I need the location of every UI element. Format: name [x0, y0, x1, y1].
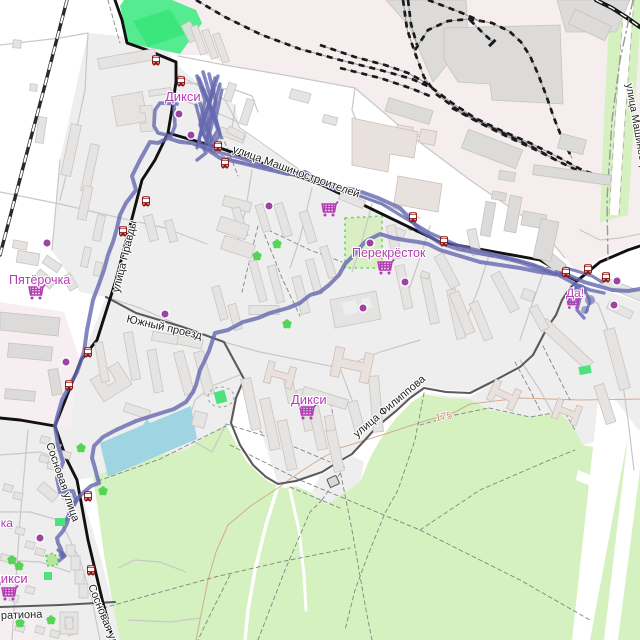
svg-text:ратиона: ратиона: [1, 609, 44, 622]
svg-text:Дикси: Дикси: [165, 89, 201, 104]
svg-text:Да!: Да!: [566, 286, 584, 300]
svg-text:Дикси: Дикси: [0, 571, 28, 586]
svg-text:Пятёрочка: Пятёрочка: [9, 273, 70, 287]
svg-text:Перекрёсток: Перекрёсток: [352, 246, 426, 260]
svg-text:Дикси: Дикси: [291, 392, 327, 407]
svg-text:Ромашка: Ромашка: [0, 516, 13, 530]
